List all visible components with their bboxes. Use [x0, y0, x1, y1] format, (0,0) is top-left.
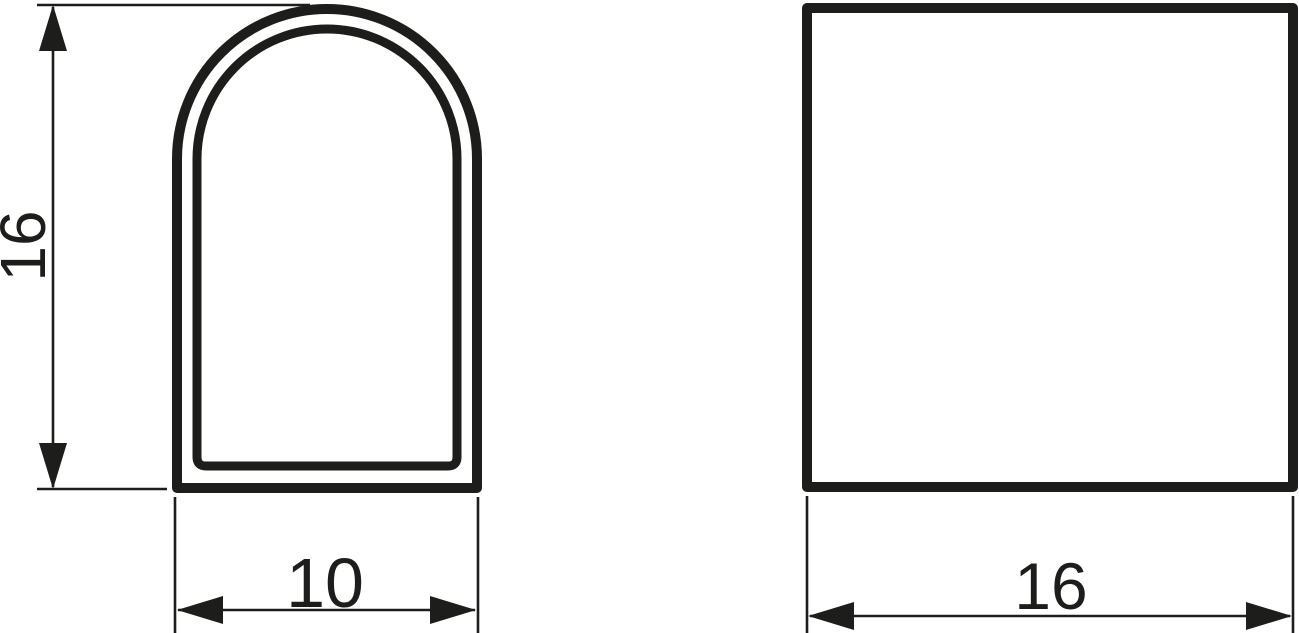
dimension-arch-width: 10	[175, 497, 478, 633]
arrowhead-right-icon	[1246, 602, 1292, 630]
technical-drawing: 16 10 16	[0, 0, 1299, 633]
arrowhead-down-icon	[39, 443, 67, 489]
arrowhead-left-icon	[177, 596, 223, 624]
arrowhead-right-icon	[430, 596, 476, 624]
dimension-arch-height: 16	[0, 5, 310, 489]
dimension-value-arch-height: 16	[0, 210, 59, 281]
square-contour	[807, 8, 1293, 487]
square-profile-view	[807, 8, 1293, 487]
arrowhead-up-icon	[39, 5, 67, 51]
arch-inner-contour	[197, 29, 457, 466]
arrowhead-left-icon	[808, 602, 854, 630]
dimension-value-square-width: 16	[1014, 549, 1087, 623]
dimension-square-width: 16	[807, 496, 1293, 633]
arch-profile-view	[177, 9, 477, 488]
dimension-value-arch-width: 10	[286, 544, 364, 622]
drawing-canvas: 16 10 16	[0, 0, 1299, 633]
